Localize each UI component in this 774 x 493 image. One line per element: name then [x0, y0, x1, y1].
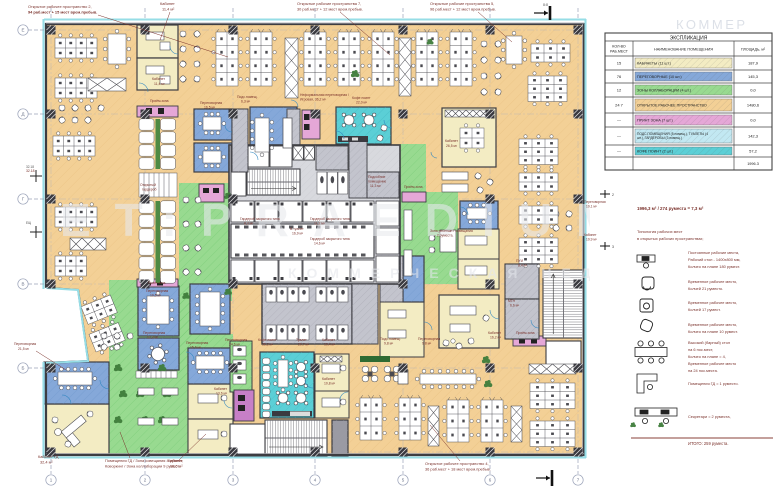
svg-text:0,0: 0,0 — [750, 118, 756, 123]
svg-text:15,6 м²: 15,6 м² — [190, 346, 202, 350]
svg-text:1996,3 м² / 274 руместа = 7,3: 1996,3 м² / 274 руместа = 7,3 м² — [637, 206, 704, 211]
svg-text:Кабинет: Кабинет — [445, 139, 458, 143]
svg-text:Кабинет: Кабинет — [322, 377, 335, 381]
svg-text:РАБ.МЕСТ: РАБ.МЕСТ — [610, 50, 629, 54]
svg-text:шт.), ГАРДЕРОБЫ (3 помещ.): шт.), ГАРДЕРОБЫ (3 помещ.) — [637, 136, 682, 140]
svg-text:30 раб.мест + 12 мест врем.пре: 30 раб.мест + 12 мест врем.пребыв. — [297, 7, 363, 12]
svg-text:ЗОНЫ КОЛЛАБОРАЦИИ (4 шт.): ЗОНЫ КОЛЛАБОРАЦИИ (4 шт.) — [637, 89, 691, 93]
svg-text:Секретари = 2 руместа,: Секретари = 2 руместа, — [688, 414, 731, 419]
svg-text:15: 15 — [617, 61, 622, 66]
svg-text:Кабинет: Кабинет — [214, 387, 227, 391]
svg-text:ПОДС.ПОМЕЩЕНИЯ (5 помещ.), ТУА: ПОДС.ПОМЕЩЕНИЯ (5 помещ.), ТУАЛЕТЫ (4 — [637, 132, 708, 136]
svg-text:Приём.зона: Приём.зона — [516, 331, 535, 335]
svg-text:Переговорная: Переговорная — [143, 331, 165, 335]
svg-text:КАБИНЕТЫ (11 шт.): КАБИНЕТЫ (11 шт.) — [637, 62, 671, 66]
svg-text:Переговорная: Переговорная — [146, 289, 168, 293]
svg-text:Временное рабочее место: Временное рабочее место — [688, 361, 736, 366]
svg-text:57,2: 57,2 — [749, 149, 758, 154]
svg-text:КОЛ-ВО: КОЛ-ВО — [612, 45, 626, 49]
svg-text:10,5 м²: 10,5 м² — [150, 294, 162, 298]
svg-text:32.18: 32.18 — [26, 165, 34, 169]
svg-text:Туалет: Туалет — [296, 338, 307, 342]
svg-text:в открытых рабочих пространств: в открытых рабочих пространствах; — [637, 236, 704, 241]
svg-text:Неформальная переговорная /: Неформальная переговорная / — [300, 93, 349, 97]
svg-text:В.туалет: В.туалет — [290, 227, 304, 231]
svg-text:1480,6: 1480,6 — [747, 103, 760, 108]
svg-text:145,3: 145,3 — [748, 74, 759, 79]
svg-text:Постоянные рабочие места,: Постоянные рабочие места, — [688, 250, 739, 255]
svg-text:0,0: 0,0 — [750, 88, 756, 93]
svg-text:14,6 м²: 14,6 м² — [314, 242, 326, 246]
svg-text:—: — — [617, 149, 621, 154]
svg-text:22,0 м²: 22,0 м² — [356, 101, 368, 105]
svg-text:11,3 м²: 11,3 м² — [370, 184, 382, 188]
svg-text:12,3 м²: 12,3 м² — [147, 336, 159, 340]
svg-text:Открытые рабочие пространства: Открытые рабочие пространства 5, — [430, 1, 494, 6]
svg-text:19,9 м²: 19,9 м² — [586, 238, 598, 242]
svg-text:9,8 м²: 9,8 м² — [422, 342, 432, 346]
svg-text:Приём.зона: Приём.зона — [404, 185, 423, 189]
svg-text:24 7: 24 7 — [615, 103, 624, 108]
svg-text:ПЛОЩАДЬ, м²: ПЛОЩАДЬ, м² — [741, 48, 766, 52]
svg-text:ПУИ: ПУИ — [516, 259, 524, 263]
svg-text:Рабочий стол - 1400х800 мм,: Рабочий стол - 1400х800 мм, — [688, 257, 740, 262]
svg-text:гардероб: гардероб — [142, 188, 156, 192]
svg-text:Колчео на плане 180 румест.: Колчео на плане 180 румест. — [688, 264, 740, 269]
svg-text:Кабинет: Кабинет — [488, 331, 501, 335]
svg-text:Временное рабочее место,: Временное рабочее место, — [688, 300, 737, 305]
svg-text:Переговорная: Переговорная — [418, 337, 440, 341]
svg-text:Кабинет: Кабинет — [160, 1, 175, 6]
svg-text:2: 2 — [612, 193, 614, 197]
svg-text:26,5 м²: 26,5 м² — [446, 144, 458, 148]
svg-text:94 раб.мест + 15 мест врем.пре: 94 раб.мест + 15 мест врем.пребыв. — [28, 10, 97, 15]
svg-text:ЭКСПЛИКАЦИЯ: ЭКСПЛИКАЦИЯ — [670, 36, 708, 42]
svg-text:ОТКРЫТОЕ РАБОЧЕЕ ПРОСТРАНСТВО: ОТКРЫТОЕ РАБОЧЕЕ ПРОСТРАНСТВО — [637, 104, 707, 108]
svg-text:Открытый: Открытый — [140, 183, 156, 187]
svg-text:13,6 м²: 13,6 м² — [170, 464, 183, 469]
svg-text:21,5 м²: 21,5 м² — [18, 347, 30, 351]
svg-text:96 раб.мест + 12 мест врем.пре: 96 раб.мест + 12 мест врем.пребыв. — [430, 7, 496, 12]
svg-text:Кабинет: Кабинет — [322, 338, 335, 342]
svg-text:НАИМЕНОВАНИЕ ПОМЕЩЕНИЯ: НАИМЕНОВАНИЕ ПОМЕЩЕНИЯ — [654, 48, 713, 52]
svg-text:Переговорная: Переговорная — [200, 101, 222, 105]
svg-text:Временное рабочее место,: Временное рабочее место, — [688, 322, 737, 327]
svg-text:13,6 м²: 13,6 м² — [216, 392, 228, 396]
svg-text:Коворкинг / Зона коллаборации: Коворкинг / Зона коллаборации 9 румест. — [105, 464, 180, 469]
svg-text:КОММЕР: КОММЕР — [676, 17, 748, 32]
svg-text:11,2 м²: 11,2 м² — [314, 222, 326, 226]
svg-text:Типология рабочих мест: Типология рабочих мест — [637, 229, 683, 234]
svg-text:Высокий (барный) стол: Высокий (барный) стол — [688, 340, 730, 345]
svg-text:16,9 м²: 16,9 м² — [292, 232, 304, 236]
svg-text:20,7 м²: 20,7 м² — [298, 343, 310, 347]
svg-text:—: — — [617, 134, 621, 139]
svg-text:6,6 м²: 6,6 м² — [510, 304, 520, 308]
svg-text:Открытое рабочее пространство: Открытое рабочее пространство 2, — [28, 4, 92, 9]
svg-text:Подс.помещ.: Подс.помещ. — [237, 95, 258, 99]
svg-text:—: — — [617, 118, 621, 123]
svg-text:Принт.зона: Принт.зона — [148, 281, 165, 285]
svg-text:10,4 м²: 10,4 м² — [324, 343, 336, 347]
svg-text:16,5 м²: 16,5 м² — [204, 106, 216, 110]
svg-text:187,9: 187,9 — [748, 61, 759, 66]
svg-text:МГН: МГН — [508, 299, 516, 303]
svg-text:142,3: 142,3 — [748, 134, 759, 139]
svg-text:Колчей 21 руместо.: Колчей 21 руместо. — [688, 286, 723, 291]
svg-text:Б: Б — [22, 366, 25, 371]
svg-text:Колчео на плане = 4,: Колчео на плане = 4, — [688, 354, 726, 359]
svg-text:Открытое рабочее пространство: Открытое рабочее пространство 4, — [425, 461, 489, 466]
svg-text:24,6 м²: 24,6 м² — [229, 343, 241, 347]
svg-text:12: 12 — [617, 88, 622, 93]
svg-text:Кабинет: Кабинет — [168, 458, 183, 463]
svg-text:1996.3: 1996.3 — [747, 162, 759, 166]
svg-text:8,4 м²: 8,4 м² — [518, 264, 528, 268]
svg-text:36 раб.мест + 18 мест врем.пре: 36 раб.мест + 18 мест врем.пребыв. — [425, 467, 491, 472]
svg-text:Временное рабочее место,: Временное рабочее место, — [688, 279, 737, 284]
svg-text:ИТОГО: 259 руместа.: ИТОГО: 259 руместа. — [688, 441, 728, 446]
svg-text:КОФЕ ПОИНТ (2 шт.): КОФЕ ПОИНТ (2 шт.) — [637, 150, 673, 154]
svg-text:Переговорная: Переговорная — [186, 341, 208, 345]
svg-text:3: 3 — [612, 245, 614, 249]
svg-text:19,1 м²: 19,1 м² — [586, 205, 598, 209]
svg-text:Гардероб закрытого типа: Гардероб закрытого типа — [310, 237, 350, 241]
svg-text:Кофе поинт: Кофе поинт — [258, 338, 277, 342]
svg-text:16,2 м²: 16,2 м² — [490, 336, 502, 340]
svg-text:ЕЩ: ЕЩ — [26, 221, 31, 225]
svg-text:9,8 м²: 9,8 м² — [384, 342, 394, 346]
svg-text:6,3 м²: 6,3 м² — [241, 100, 251, 104]
svg-text:Переговорная: Переговорная — [14, 342, 36, 346]
svg-text:10,8 м²: 10,8 м² — [324, 382, 336, 386]
svg-text:76: 76 — [617, 74, 622, 79]
svg-text:Переговорная: Переговорная — [584, 200, 606, 204]
svg-text:32.18: 32.18 — [26, 169, 35, 173]
svg-text:Кофе поинт: Кофе поинт — [352, 96, 371, 100]
svg-text:В: В — [21, 282, 24, 287]
svg-text:Д: Д — [21, 112, 24, 117]
svg-text:35,2 м²: 35,2 м² — [262, 343, 274, 347]
svg-text:Подс.помещ.: Подс.помещ. — [380, 337, 401, 341]
svg-text:– 2 руместа.: – 2 руместа. — [434, 234, 453, 238]
svg-text:Е: Е — [21, 28, 24, 33]
svg-text:Кабинет: Кабинет — [584, 233, 597, 237]
svg-text:Гардероб закрытого типа: Гардероб закрытого типа — [240, 217, 280, 221]
svg-text:0:0: 0:0 — [543, 3, 548, 7]
svg-text:Приём.зона: Приём.зона — [150, 99, 169, 103]
svg-text:Помещения ГД = 1 руместо.: Помещения ГД = 1 руместо. — [688, 381, 739, 386]
svg-text:ПРИНТ ЗОНА (7 шт.): ПРИНТ ЗОНА (7 шт.) — [637, 119, 673, 123]
svg-text:Колчео на плане 10 румест.: Колчео на плане 10 румест. — [688, 329, 738, 334]
svg-text:ПЕРЕГОВОРНЫЕ (10 шт.): ПЕРЕГОВОРНЫЕ (10 шт.) — [637, 75, 682, 79]
svg-text:Кабинет: Кабинет — [152, 77, 165, 81]
svg-text:Гардероб закрытого типа: Гардероб закрытого типа — [310, 217, 350, 221]
svg-text:11,4 м²: 11,4 м² — [154, 82, 166, 86]
svg-text:8,2 м²: 8,2 м² — [244, 222, 254, 226]
svg-text:Переговорная: Переговорная — [225, 338, 247, 342]
svg-text:на 24 пос.места.: на 24 пос.места. — [688, 368, 718, 373]
svg-text:Кабинет ГД: Кабинет ГД — [38, 454, 59, 459]
svg-text:на 6 пос.мест,: на 6 пос.мест, — [688, 347, 713, 352]
svg-text:Зона ресепшн / совещания: Зона ресепшн / совещания — [430, 229, 473, 233]
svg-text:Игровая, 36,2 м²: Игровая, 36,2 м² — [300, 98, 327, 102]
svg-text:Колчей 17 румест.: Колчей 17 румест. — [688, 307, 721, 312]
svg-text:Открытые рабочие пространства: Открытые рабочие пространства 7, — [297, 1, 361, 6]
svg-text:Подсобное: Подсобное — [368, 175, 386, 179]
svg-text:помещение: помещение — [368, 180, 386, 184]
svg-text:11,4 м²: 11,4 м² — [162, 7, 175, 12]
